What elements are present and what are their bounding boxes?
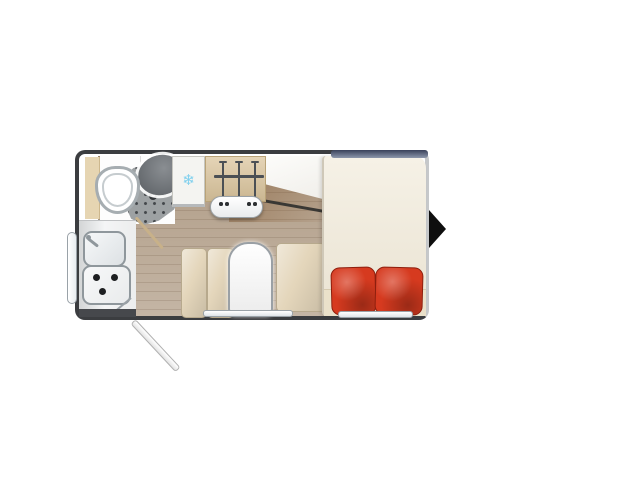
- burner: [111, 274, 118, 281]
- dinette-right-bench: [276, 243, 326, 312]
- entrance-door-swing: [130, 319, 180, 372]
- fridge: ❄: [172, 156, 205, 207]
- faucet-base: [86, 235, 91, 240]
- heater-knob: [219, 202, 223, 206]
- burner: [99, 288, 106, 295]
- kitchen-sink: [83, 231, 126, 267]
- window-bottom-bed: [338, 311, 413, 318]
- window-bottom-dinette: [203, 310, 293, 317]
- kitchen-counter: [79, 220, 136, 316]
- entry-arrow-icon: [429, 210, 446, 248]
- heater-knob: [225, 202, 229, 206]
- hanger-icon: [246, 161, 264, 199]
- heater-knob: [247, 202, 251, 206]
- heater: [210, 196, 263, 218]
- toilet-bowl-outline: [102, 173, 133, 207]
- bed: [322, 156, 426, 316]
- pillow-right: [374, 266, 423, 315]
- window-left-side: [67, 232, 77, 304]
- hob: [82, 265, 131, 305]
- dinette-left-bench: [181, 248, 232, 316]
- snowflake-icon: ❄: [182, 173, 195, 188]
- pillow-left: [330, 266, 376, 315]
- caravan-body: ❄: [75, 150, 429, 320]
- kitchen-wall-band: [79, 309, 136, 317]
- heater-knob: [253, 202, 257, 206]
- window-top-bed: [331, 150, 428, 158]
- burner: [93, 274, 100, 281]
- bench-cushion: [181, 248, 207, 318]
- dinette-table: [228, 242, 273, 316]
- floorplan-canvas: ❄: [0, 0, 640, 480]
